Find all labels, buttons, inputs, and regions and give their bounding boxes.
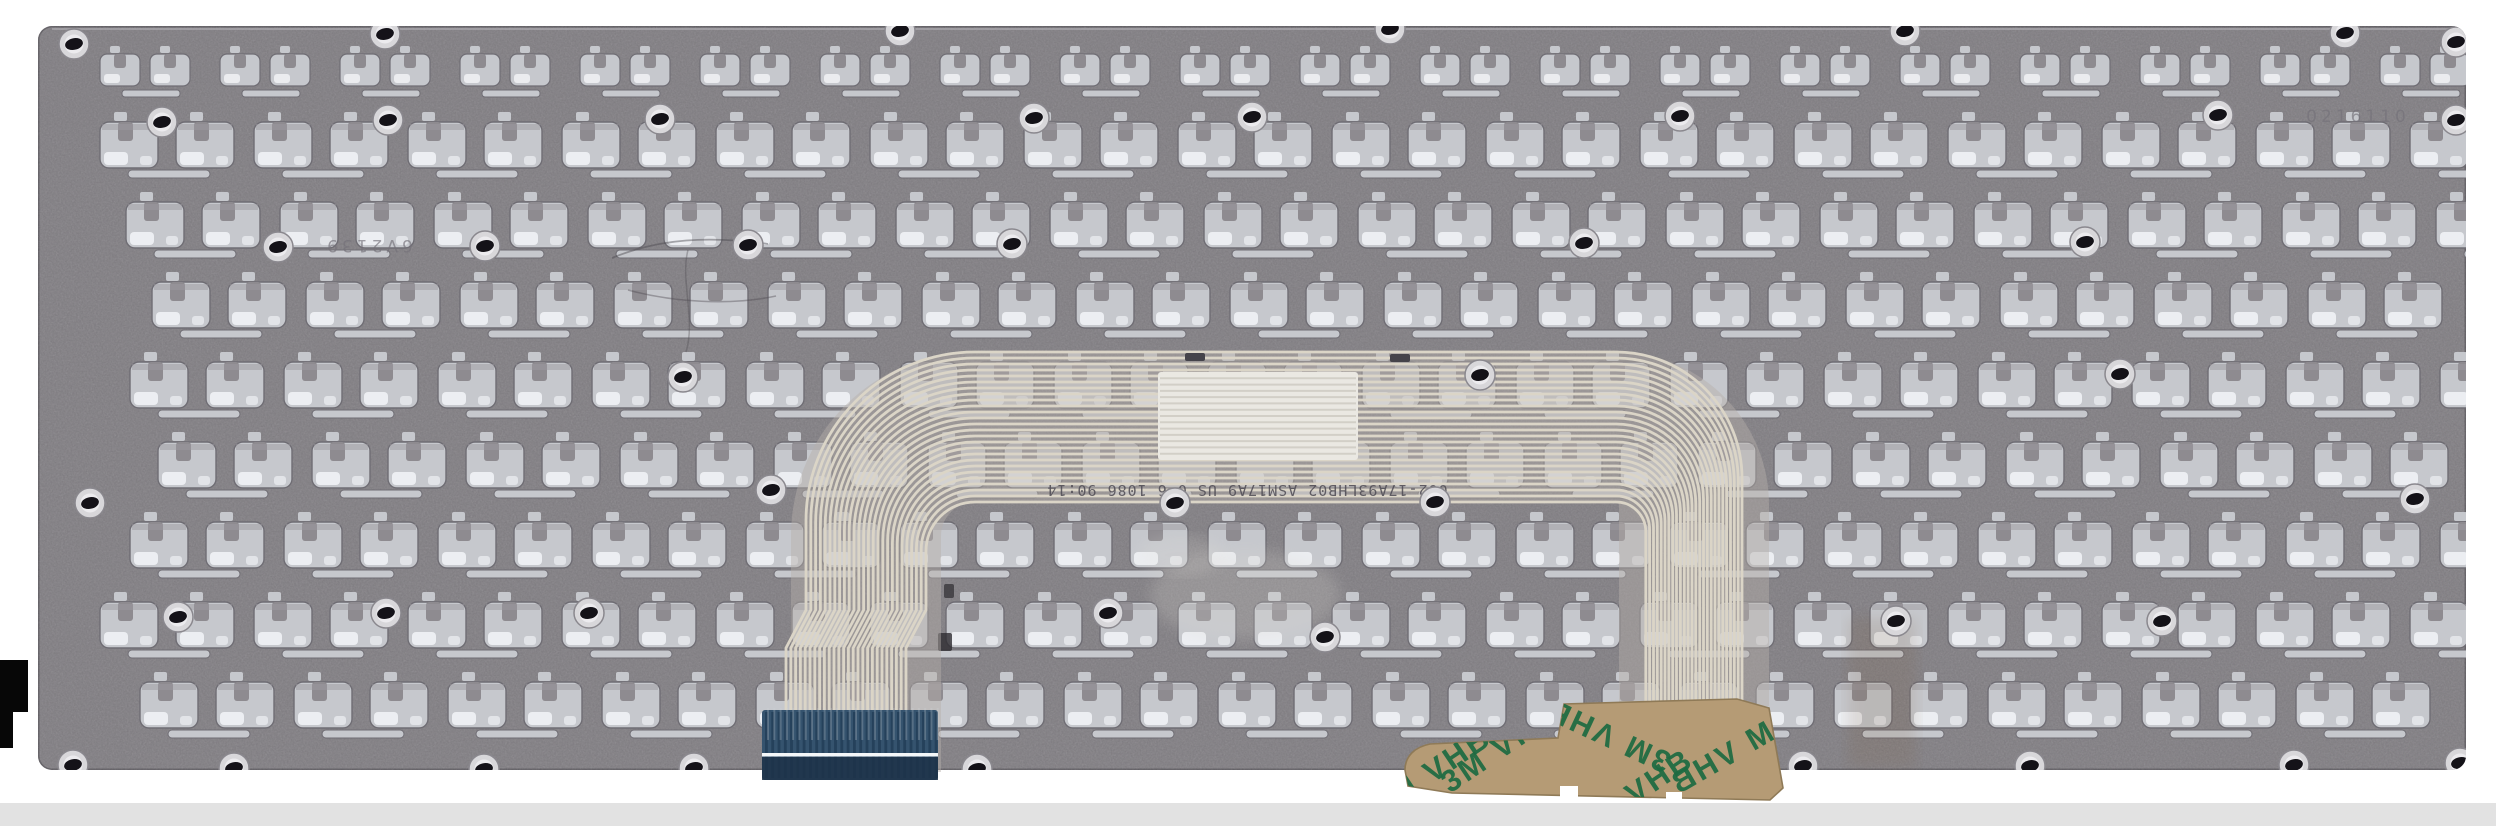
screw-hole [263,232,293,262]
screw-hole [2070,227,2100,257]
screw-hole [645,104,675,134]
photo-canvas: 6V2139 0216110 002-17A93LHB02 ASM17A9 US… [0,0,2496,826]
stamped-text-right: 0216110 [2306,107,2410,127]
screw-hole [147,107,177,137]
screw-hole [2203,100,2233,130]
screw-hole [470,231,500,261]
ribbon-marking-text: 002-17A93LHB02 ASM17A9 US 0 6 1086 90:14 [1046,481,1447,499]
tape-edge-notch [1666,792,1682,802]
connector-contact-zone [762,757,938,780]
screw-hole [1881,606,1911,636]
discoloration-streak [1848,618,1916,768]
dark-clip-mark [944,584,954,598]
screw-hole [756,475,786,505]
screw-hole [75,488,105,518]
keyboard-backplate-photo: 6V2139 0216110 002-17A93LHB02 ASM17A9 US… [0,0,2496,826]
photo-bottom-strip [0,803,2496,826]
artifact-block [0,660,28,712]
ribbon-slot [1185,353,1205,361]
connector-white-line [762,753,938,757]
screw-hole [1420,487,1450,517]
screw-hole [2147,606,2177,636]
screw-hole [1465,360,1495,390]
screw-hole [1160,488,1190,518]
screw-hole [163,602,193,632]
screw-hole [371,598,401,628]
screw-hole [1093,598,1123,628]
screw-hole [574,598,604,628]
screw-hole [2105,359,2135,389]
screw-hole [668,362,698,392]
ribbon-slot [1390,354,1410,362]
screw-hole [733,230,763,260]
screw-hole [1019,103,1049,133]
stamped-text-left: 6V2139 [323,235,413,255]
ribbon-stiffener-label [1158,372,1358,460]
screw-hole [2400,484,2430,514]
fpc-connector [762,708,938,780]
artifact-block [0,712,13,748]
screw-hole [997,229,1027,259]
screw-hole [59,29,89,59]
tape-edge-notch [1560,786,1578,798]
screw-hole [1569,228,1599,258]
screw-hole [1310,622,1340,652]
screw-hole [373,105,403,135]
screw-hole [1237,102,1267,132]
stain-smudge [1138,535,1222,575]
screw-hole [1665,101,1695,131]
